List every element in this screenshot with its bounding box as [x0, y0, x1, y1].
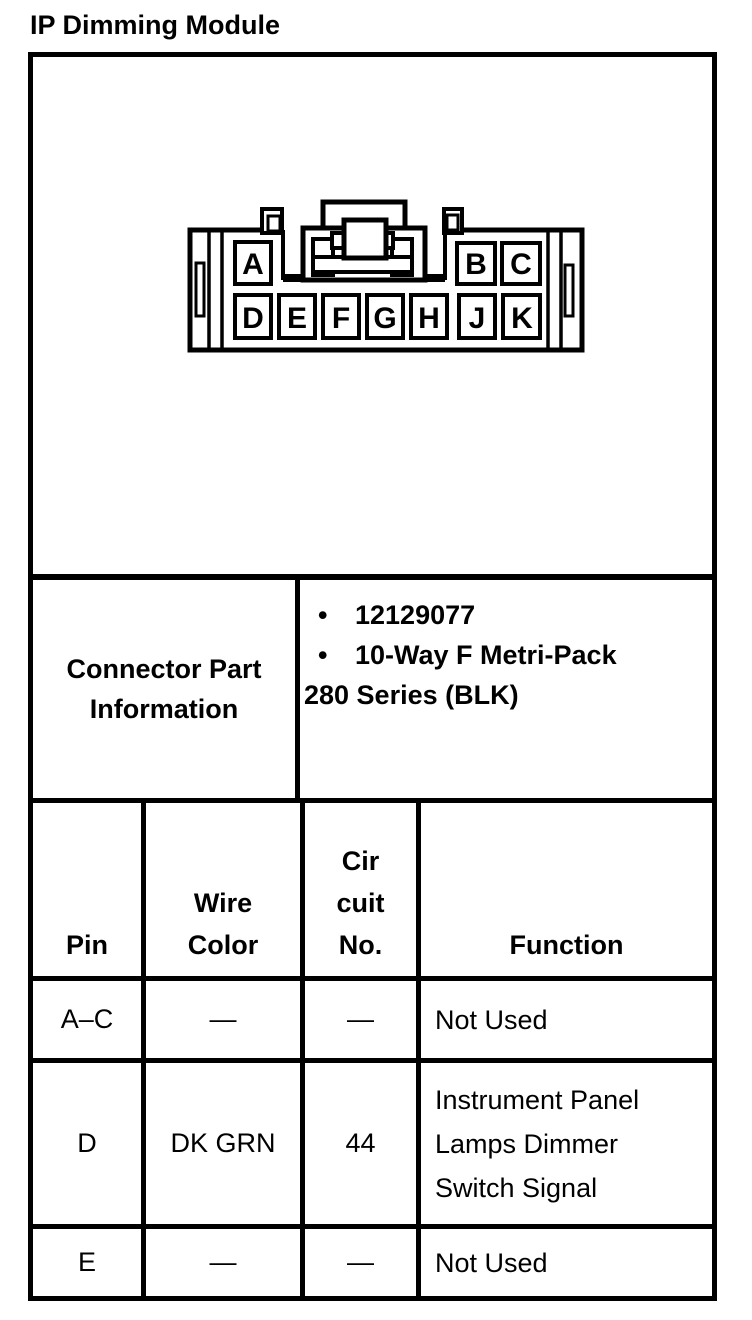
pin-label-b: B [465, 248, 487, 281]
col-header-circuit-no: Cir cuit No. [300, 798, 416, 976]
connector-table: A B C D E F G H J K Connector Part Infor… [28, 52, 717, 1301]
col-header-function: Function [416, 798, 712, 976]
index-tab-right [444, 209, 462, 233]
info-item: •10-Way F Metri-Pack [304, 635, 712, 675]
left-slot [196, 263, 204, 316]
index-tab-left [262, 209, 282, 233]
pin-label-a: A [242, 248, 264, 281]
connector-info-row: Connector Part Information •12129077 •10… [33, 574, 712, 798]
connector-diagram: A B C D E F G H J K [33, 57, 712, 574]
pin-label-d: D [242, 302, 264, 335]
wire-color-cell: DK GRN [141, 1058, 300, 1224]
pin-cell: D [33, 1058, 141, 1224]
pin-label-j: J [469, 302, 486, 335]
circuit-no-cell: 44 [300, 1058, 416, 1224]
right-slot [565, 265, 573, 316]
diagram-cell: A B C D E F G H J K [33, 57, 712, 574]
col-header-wire-color: Wire Color [141, 798, 300, 976]
circuit-no-cell: — [300, 1224, 416, 1296]
pin-label-h: H [418, 302, 440, 335]
pin-label-k: K [511, 302, 533, 335]
col-header-pin: Pin [33, 798, 141, 976]
manual-page: IP Dimming Module [0, 0, 752, 1320]
info-item-text: 12129077 [355, 600, 475, 630]
info-item-continuation: 280 Series (BLK) [304, 675, 712, 715]
pin-label-e: E [287, 302, 307, 335]
connector-info-values: •12129077 •10-Way F Metri-Pack 280 Serie… [300, 580, 712, 798]
pin-cell: A–C [33, 976, 141, 1058]
pin-table: Pin Wire Color Cir cuit No. Function A–C… [33, 798, 712, 1296]
connector-info-label: Connector Part Information [33, 580, 300, 798]
bullet-icon: • [318, 595, 355, 635]
pin-label-g: G [373, 302, 396, 335]
function-cell: Not Used [416, 976, 712, 1058]
pin-cell: E [33, 1224, 141, 1296]
bullet-icon: • [318, 635, 355, 675]
info-item: •12129077 [304, 595, 712, 635]
function-cell: Instrument Panel Lamps Dimmer Switch Sig… [416, 1058, 712, 1224]
wire-color-cell: — [141, 976, 300, 1058]
wire-color-cell: — [141, 1224, 300, 1296]
pin-label-f: F [332, 302, 350, 335]
connector-latch [303, 202, 425, 280]
function-cell: Not Used [416, 1224, 712, 1296]
circuit-no-cell: — [300, 976, 416, 1058]
pin-label-c: C [510, 248, 532, 281]
info-item-text: 10-Way F Metri-Pack [355, 640, 617, 670]
page-title: IP Dimming Module [30, 10, 280, 41]
